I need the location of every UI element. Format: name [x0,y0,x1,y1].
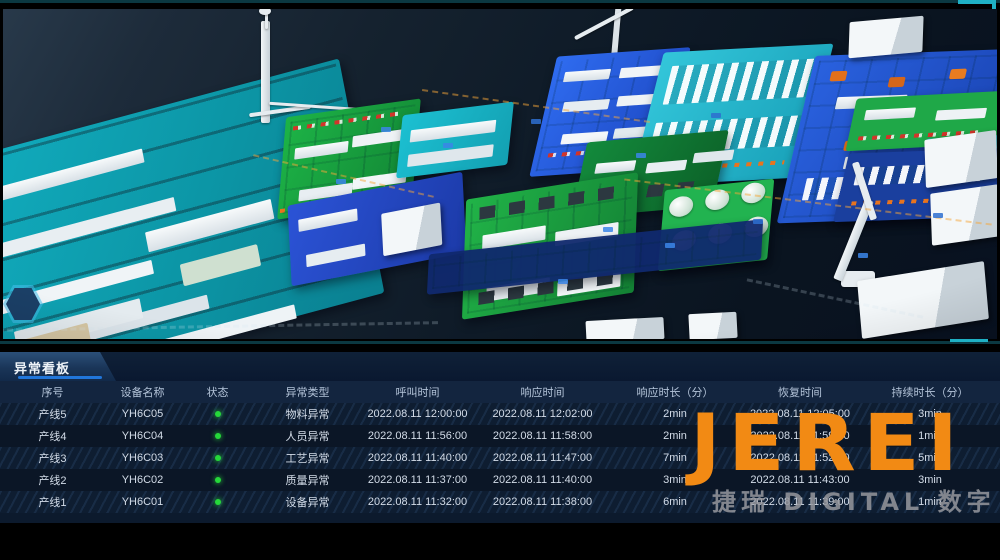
cell-device: YH6C01 [105,491,180,513]
factory-3d-viewport[interactable] [3,9,997,339]
label-chips [381,127,391,132]
column-header: 响应时间 [475,381,610,403]
panel-title: 异常看板 [14,358,70,377]
hexagon-marker-inner [6,288,40,320]
cell-device: YH6C04 [105,425,180,447]
cell-recovery_time: 2022.08.11 11:52:00 [740,447,860,469]
cell-call_time: 2022.08.11 12:00:00 [360,403,475,425]
machine-row [298,208,358,232]
white-warehouse [924,130,997,188]
cell-call_time: 2022.08.11 11:37:00 [360,469,475,491]
cell-response_time: 2022.08.11 11:58:00 [475,425,610,447]
cell-recovery_time: 2022.08.11 11:43:00 [740,469,860,491]
status-cell [180,491,255,513]
status-dot-icon [215,455,221,461]
white-warehouse [857,261,989,339]
machine-row [145,199,274,252]
machine-row [594,160,636,174]
frame-corner-bracket [958,0,996,4]
machine-row [3,149,145,211]
cell-response_minutes: 2min [610,425,740,447]
cell-response_minutes: 2min [610,403,740,425]
cell-call_time: 2022.08.11 11:32:00 [360,491,475,513]
crane-boom [574,9,634,40]
cell-response_minutes: 3min [610,469,740,491]
cell-seq: 产线5 [0,403,105,425]
white-warehouse [585,317,664,339]
frame-top-line [0,0,1000,3]
table-body: 产线5YH6C05物料异常2022.08.11 12:00:002022.08.… [0,403,1000,513]
panel-header: 异常看板 [0,352,1000,381]
dark-slots [479,185,620,219]
cell-seq: 产线3 [0,447,105,469]
table-row[interactable]: 产线1YH6C01设备异常2022.08.11 11:32:002022.08.… [0,491,1000,513]
tower-column [261,21,270,123]
cell-response_time: 2022.08.11 11:40:00 [475,469,610,491]
machine-row [294,141,348,160]
status-cell [180,425,255,447]
frame-bottom-line [0,341,1000,344]
status-dot-icon [215,477,221,483]
column-header: 呼叫时间 [360,381,475,403]
status-cell [180,447,255,469]
cell-type: 工艺异常 [255,447,360,469]
status-cell [180,469,255,491]
cell-type: 人员异常 [255,425,360,447]
table-header-row: 序号 设备名称 状态 异常类型 呼叫时间 响应时间 响应时长（分） 恢复时间 持… [0,381,1000,403]
cell-type: 设备异常 [255,491,360,513]
cell-device: YH6C03 [105,447,180,469]
table-row[interactable]: 产线4YH6C04人员异常2022.08.11 11:56:002022.08.… [0,425,1000,447]
white-warehouse [688,312,737,339]
column-header: 序号 [0,381,105,403]
cell-type: 物料异常 [255,403,360,425]
column-header: 设备名称 [105,381,180,403]
cell-duration_minutes: 3min [860,403,1000,425]
cell-seq: 产线1 [0,491,105,513]
cell-duration_minutes: 1min [860,491,1000,513]
table-row[interactable]: 产线5YH6C05物料异常2022.08.11 12:00:002022.08.… [0,403,1000,425]
exception-board-panel: 异常看板 序号 设备名称 状态 异常类型 呼叫时间 响应时间 响应时长（分） 恢… [0,352,1000,523]
tower-cap [259,9,271,15]
cell-recovery_time: 2022.08.11 12:05:00 [740,403,860,425]
title-underline [18,376,102,379]
robot-units [829,71,847,82]
cell-duration_minutes: 3min [860,469,1000,491]
status-dot-icon [215,499,221,505]
label-chips [603,227,613,232]
cell-type: 质量异常 [255,469,360,491]
cell-response_time: 2022.08.11 12:02:00 [475,403,610,425]
cell-seq: 产线4 [0,425,105,447]
cell-response_time: 2022.08.11 11:47:00 [475,447,610,469]
cell-duration_minutes: 5min [860,447,1000,469]
machine-columns [663,58,818,104]
machine-row [410,120,497,143]
tank [668,195,694,218]
column-header: 持续时长（分） [860,381,1000,403]
status-dot-icon [215,411,221,417]
plate-teal-a [396,102,514,179]
column-header: 状态 [180,381,255,403]
cell-device: YH6C05 [105,403,180,425]
table-row[interactable]: 产线2YH6C02质量异常2022.08.11 11:37:002022.08.… [0,469,1000,491]
cell-recovery_time: 2022.08.11 11:59:00 [740,425,860,447]
column-header: 恢复时间 [740,381,860,403]
cell-recovery_time: 2022.08.11 11:39:00 [740,491,860,513]
cell-call_time: 2022.08.11 11:40:00 [360,447,475,469]
cell-response_minutes: 6min [610,491,740,513]
machine-row [563,69,611,82]
cell-response_time: 2022.08.11 11:38:00 [475,491,610,513]
white-building [381,202,442,256]
cell-duration_minutes: 1min [860,425,1000,447]
column-header: 异常类型 [255,381,360,403]
cell-call_time: 2022.08.11 11:56:00 [360,425,475,447]
white-warehouse [848,16,923,59]
white-warehouse [930,184,997,245]
cell-response_minutes: 7min [610,447,740,469]
column-header: 响应时长（分） [610,381,740,403]
status-dot-icon [215,433,221,439]
machine-row [864,108,916,121]
status-cell [180,403,255,425]
table-row[interactable]: 产线3YH6C03工艺异常2022.08.11 11:40:002022.08.… [0,447,1000,469]
cell-seq: 产线2 [0,469,105,491]
dashboard-root: 异常看板 序号 设备名称 状态 异常类型 呼叫时间 响应时间 响应时长（分） 恢… [0,0,1000,560]
cell-device: YH6C02 [105,469,180,491]
